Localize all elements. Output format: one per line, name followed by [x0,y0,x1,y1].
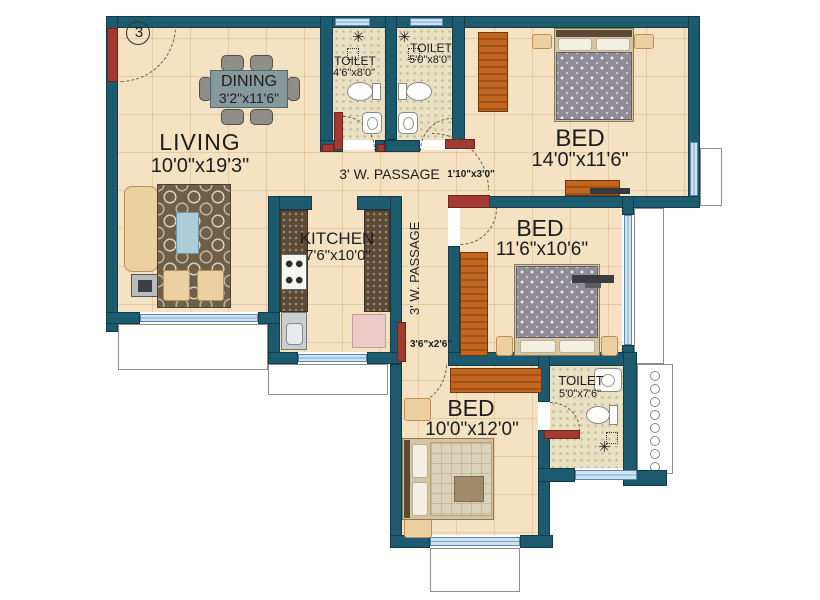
wall-toilet1-left [320,16,333,152]
dining-label: DINING [210,74,288,91]
shower-icon: ✳ [352,30,365,46]
dining-chair [221,55,244,71]
bed-top-right-ledge [700,148,722,206]
tv-console-base [585,283,601,288]
door-jamb [377,144,385,152]
dining-chair [250,55,273,71]
sofa [124,186,158,272]
tv-console [590,188,630,194]
window-bed2-right [624,215,632,345]
wall-kitchen-left [268,196,280,364]
bed-middle-right-ledge [634,208,664,364]
washbasin-fixture [362,112,382,134]
wall-toilet2-bottom [385,140,420,152]
window-kitchen [298,354,367,362]
passage-v-dims: 3'6"x2'6" [402,340,460,351]
duvet [556,52,632,120]
unit-number-circle: 3 [126,21,150,45]
entrance-door-leaf [107,28,118,82]
duct-circle [650,436,660,446]
wall-living-bottom [106,312,140,324]
window-bed1-right [690,142,698,196]
unit-number: 3 [127,25,151,41]
bed2-label: BED [505,216,575,240]
wc-fixture [347,82,373,101]
headboard [556,30,632,37]
bed3-label: BED [436,396,506,420]
nightstand [496,336,513,356]
basin-bowl [367,117,378,130]
pillow [412,444,428,478]
window-toilet3 [575,470,637,480]
bed2-door-leaf [448,195,490,208]
nightstand [532,34,552,49]
wc-cistern [609,405,618,425]
pillow [558,38,592,51]
pillow [559,340,595,353]
pillow [412,482,428,516]
kitchen-service-ledge [268,364,388,395]
armchair [163,270,190,301]
wc-cistern [372,83,381,100]
wc-fixture [406,82,432,101]
wall-bed2-right [622,196,634,215]
toilet1-label: TOILET [326,55,384,68]
living-balcony-outline [118,324,268,370]
basin-bowl [403,117,414,130]
passage-h-dims: 1'10"x3'0" [442,170,500,181]
nightstand [404,398,431,421]
toilet2-label: TOILET [402,42,460,55]
window-bed3 [430,537,520,546]
nightstand [601,336,618,356]
nightstand [634,34,654,49]
dining-chair [287,77,300,101]
duct-circle [650,397,660,407]
wall-toilet3-bottom [538,468,575,482]
duct-circle [650,423,660,433]
wall-toilet3-left [538,430,550,548]
washbasin-fixture [398,112,418,134]
kitchen-dims: 7'6"x10'0" [300,248,376,264]
wall-living-bottom [258,312,280,324]
bed3-dims: 10'0"x12'0" [420,420,524,440]
window-living [140,314,258,322]
pillow [520,340,556,353]
floor-plan-canvas: ✳ ✳ ✳ 3 LIVING 10'0"x19'3" DINING 3'2"x1… [0,0,820,600]
door-jamb [322,144,334,152]
wall-toilet2-bed [452,16,465,148]
coffee-table [176,212,199,254]
window-toilet2-top [410,18,443,26]
kitchen-label: KITCHEN [296,230,378,248]
toilet3-door-leaf [544,430,580,439]
wall-kitchen-bottom [268,352,298,364]
wall-top [106,16,700,28]
wall-toilet3-right [623,352,637,482]
wc-fixture [586,406,610,424]
kitchen-sink [281,312,307,350]
pillow [596,38,630,51]
tv-console [572,275,614,283]
wardrobe [478,32,508,112]
living-room-dims: 10'0"x19'3" [120,156,280,177]
headboard [404,440,410,518]
passage-h-label: 3' W. PASSAGE [332,167,447,182]
bed1-label: BED [545,126,615,151]
wall-toilet-partition [385,16,397,140]
kitchen-platform [352,314,386,348]
duct-circle [650,410,660,420]
bed-bottom-balcony-outline [430,548,520,592]
duct-circle [650,371,660,381]
toilet1-door-leaf [334,112,343,150]
bed1-dims: 14'0"x11'6" [520,150,640,171]
passage-v-label: 3' W. PASSAGE [408,212,440,324]
toilet2-dims: 5'0"x8'0" [400,55,460,67]
tv-unit [131,274,158,297]
duct-circle [650,384,660,394]
armchair [197,270,224,301]
wall-bed3-bottom [520,535,553,548]
toilet3-dims: 5'0"x7'6" [550,389,610,401]
wall-bed3-left [390,364,402,548]
dresser [450,368,542,393]
sink-basin [286,323,303,345]
dining-dims: 3'2"x11'6" [210,91,288,106]
toilet1-dims: 4'6"x8'0" [324,68,384,80]
toilet3-label: TOILET [552,374,610,388]
living-room-label: LIVING [130,130,270,154]
bed2-dims: 11'6"x10'6" [492,240,592,260]
tv-screen [138,280,152,292]
wardrobe [460,252,488,356]
window-toilet1-top [335,18,370,26]
shower-spray-icon [606,432,618,444]
dining-chair [250,109,273,125]
duct-circle [650,449,660,459]
dining-chair [221,109,244,125]
folded-throw [454,476,484,502]
